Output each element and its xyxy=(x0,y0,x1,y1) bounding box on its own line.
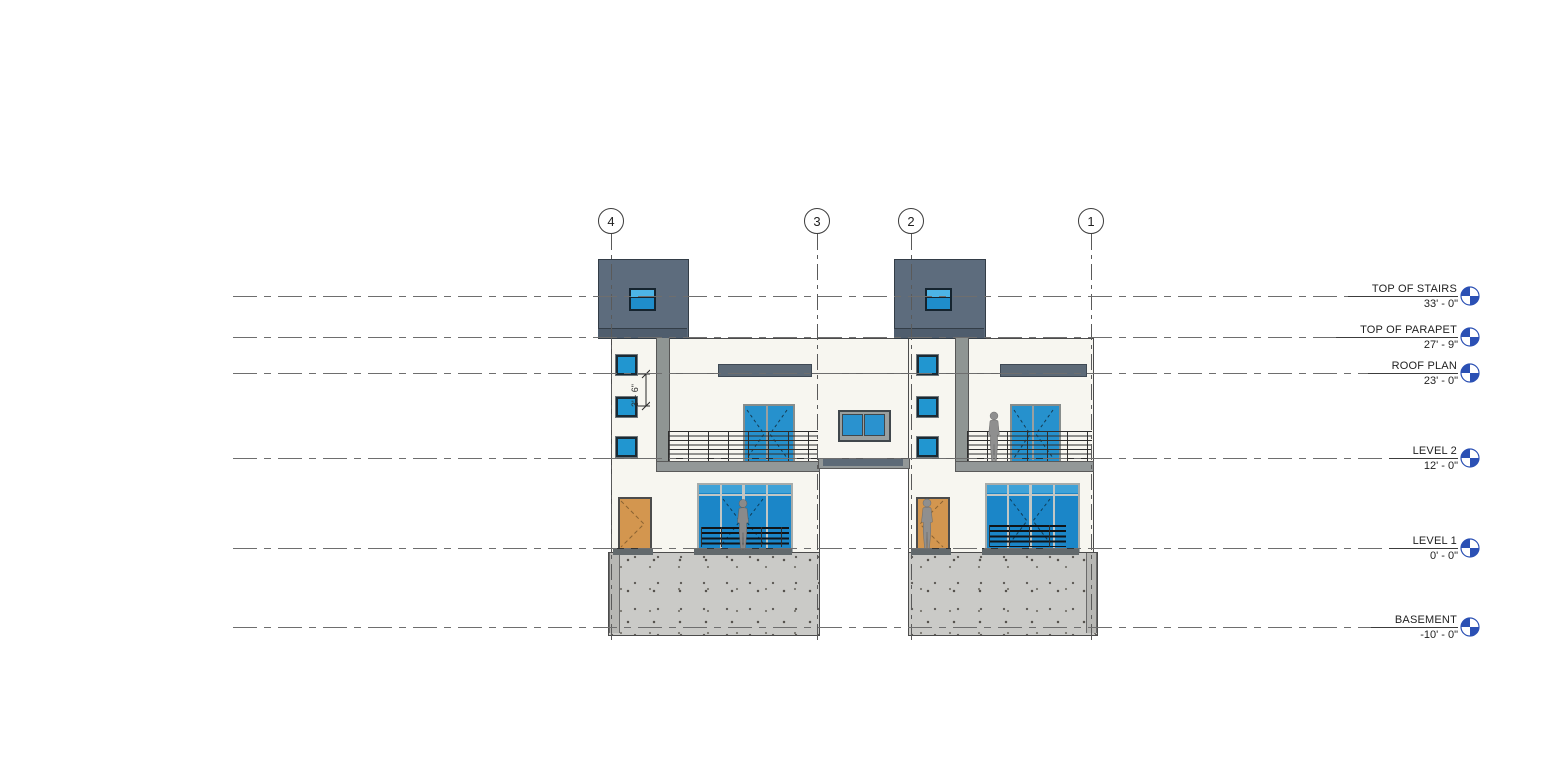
grid-bubble-2: 2 xyxy=(898,208,924,234)
level-label-level2: LEVEL 2 xyxy=(1389,445,1458,459)
level-line-roof-plan xyxy=(233,373,1455,374)
door-swing-lines xyxy=(620,499,646,549)
middle-window xyxy=(838,410,891,442)
window-pane-left xyxy=(842,414,863,436)
left-balcony-railing xyxy=(668,431,818,461)
grid-line-4 xyxy=(611,234,612,640)
grid-line-3 xyxy=(817,234,818,640)
railing-posts xyxy=(668,431,818,461)
person-figure-left-storefront xyxy=(733,497,753,552)
left-penthouse-window xyxy=(629,288,656,311)
storefront-glare xyxy=(987,485,1078,493)
left-stair-window-3 xyxy=(616,437,637,457)
grid-bubble-label: 1 xyxy=(1087,214,1094,229)
grid-bubble-label: 2 xyxy=(907,214,914,229)
left-door-threshold xyxy=(613,548,653,555)
grid-bubble-label: 3 xyxy=(813,214,820,229)
level-elevation-roof-plan: 23' - 0" xyxy=(1424,375,1458,387)
person-figure-right-door xyxy=(917,497,937,551)
level-line-top-of-parapet xyxy=(233,337,1455,338)
level-datum-icon xyxy=(1459,326,1481,348)
right-penthouse-window xyxy=(925,288,952,311)
storefront-guardrail xyxy=(989,525,1066,547)
grid-line-1 xyxy=(1091,234,1092,640)
level-datum-icon xyxy=(1459,285,1481,307)
level-label-top-of-stairs: TOP OF STAIRS xyxy=(1348,283,1458,297)
right-stair-window-2 xyxy=(917,397,938,417)
level-elevation-top-of-parapet: 27' - 9" xyxy=(1424,339,1458,351)
left-foundation xyxy=(608,552,820,636)
level-datum-icon xyxy=(1459,447,1481,469)
right-roof-screen xyxy=(1000,364,1087,377)
level-label-roof-plan: ROOF PLAN xyxy=(1368,360,1458,374)
right-foundation xyxy=(908,552,1098,636)
level-label-top-of-parapet: TOP OF PARAPET xyxy=(1336,324,1458,338)
storefront-glare xyxy=(699,485,791,493)
grid-bubble-3: 3 xyxy=(804,208,830,234)
elevation-drawing: 4 3 2 1 3' - 6" xyxy=(0,0,1548,771)
right-storefront-sill xyxy=(982,548,1079,555)
right-storefront xyxy=(985,483,1080,552)
level-line-top-of-stairs xyxy=(233,296,1455,297)
level-label-level1: LEVEL 1 xyxy=(1389,535,1458,549)
level-line-level2 xyxy=(233,458,1455,459)
level-datum-icon xyxy=(1459,616,1481,638)
level-elevation-level2: 12' - 0" xyxy=(1424,460,1458,472)
left-entry-door xyxy=(618,497,652,555)
person-figure-balcony xyxy=(984,411,1004,462)
grid-bubble-4: 4 xyxy=(598,208,624,234)
right-balcony-slab xyxy=(955,461,1094,472)
grid-bubble-1: 1 xyxy=(1078,208,1104,234)
grid-line-2 xyxy=(911,234,912,640)
storefront-transom xyxy=(699,494,791,496)
middle-link-slab-core xyxy=(823,459,903,466)
window-pane-right xyxy=(864,414,885,436)
level-elevation-top-of-stairs: 33' - 0" xyxy=(1424,298,1458,310)
level-label-basement: BASEMENT xyxy=(1371,614,1458,628)
level-elevation-level1: 0' - 0" xyxy=(1430,550,1458,562)
level-datum-icon xyxy=(1459,362,1481,384)
level-datum-icon xyxy=(1459,537,1481,559)
storefront-transom xyxy=(987,494,1078,496)
level-line-level1 xyxy=(233,548,1455,549)
level-elevation-basement: -10' - 0" xyxy=(1420,629,1458,641)
right-stair-window-1 xyxy=(917,355,938,375)
left-balcony-slab xyxy=(656,461,820,472)
right-stair-window-3 xyxy=(917,437,938,457)
grid-bubble-label: 4 xyxy=(607,214,614,229)
left-roof-screen xyxy=(718,364,812,377)
level-line-basement xyxy=(233,627,1455,628)
dimension-label: 3' - 6" xyxy=(630,384,640,407)
railing-posts xyxy=(989,525,1066,547)
